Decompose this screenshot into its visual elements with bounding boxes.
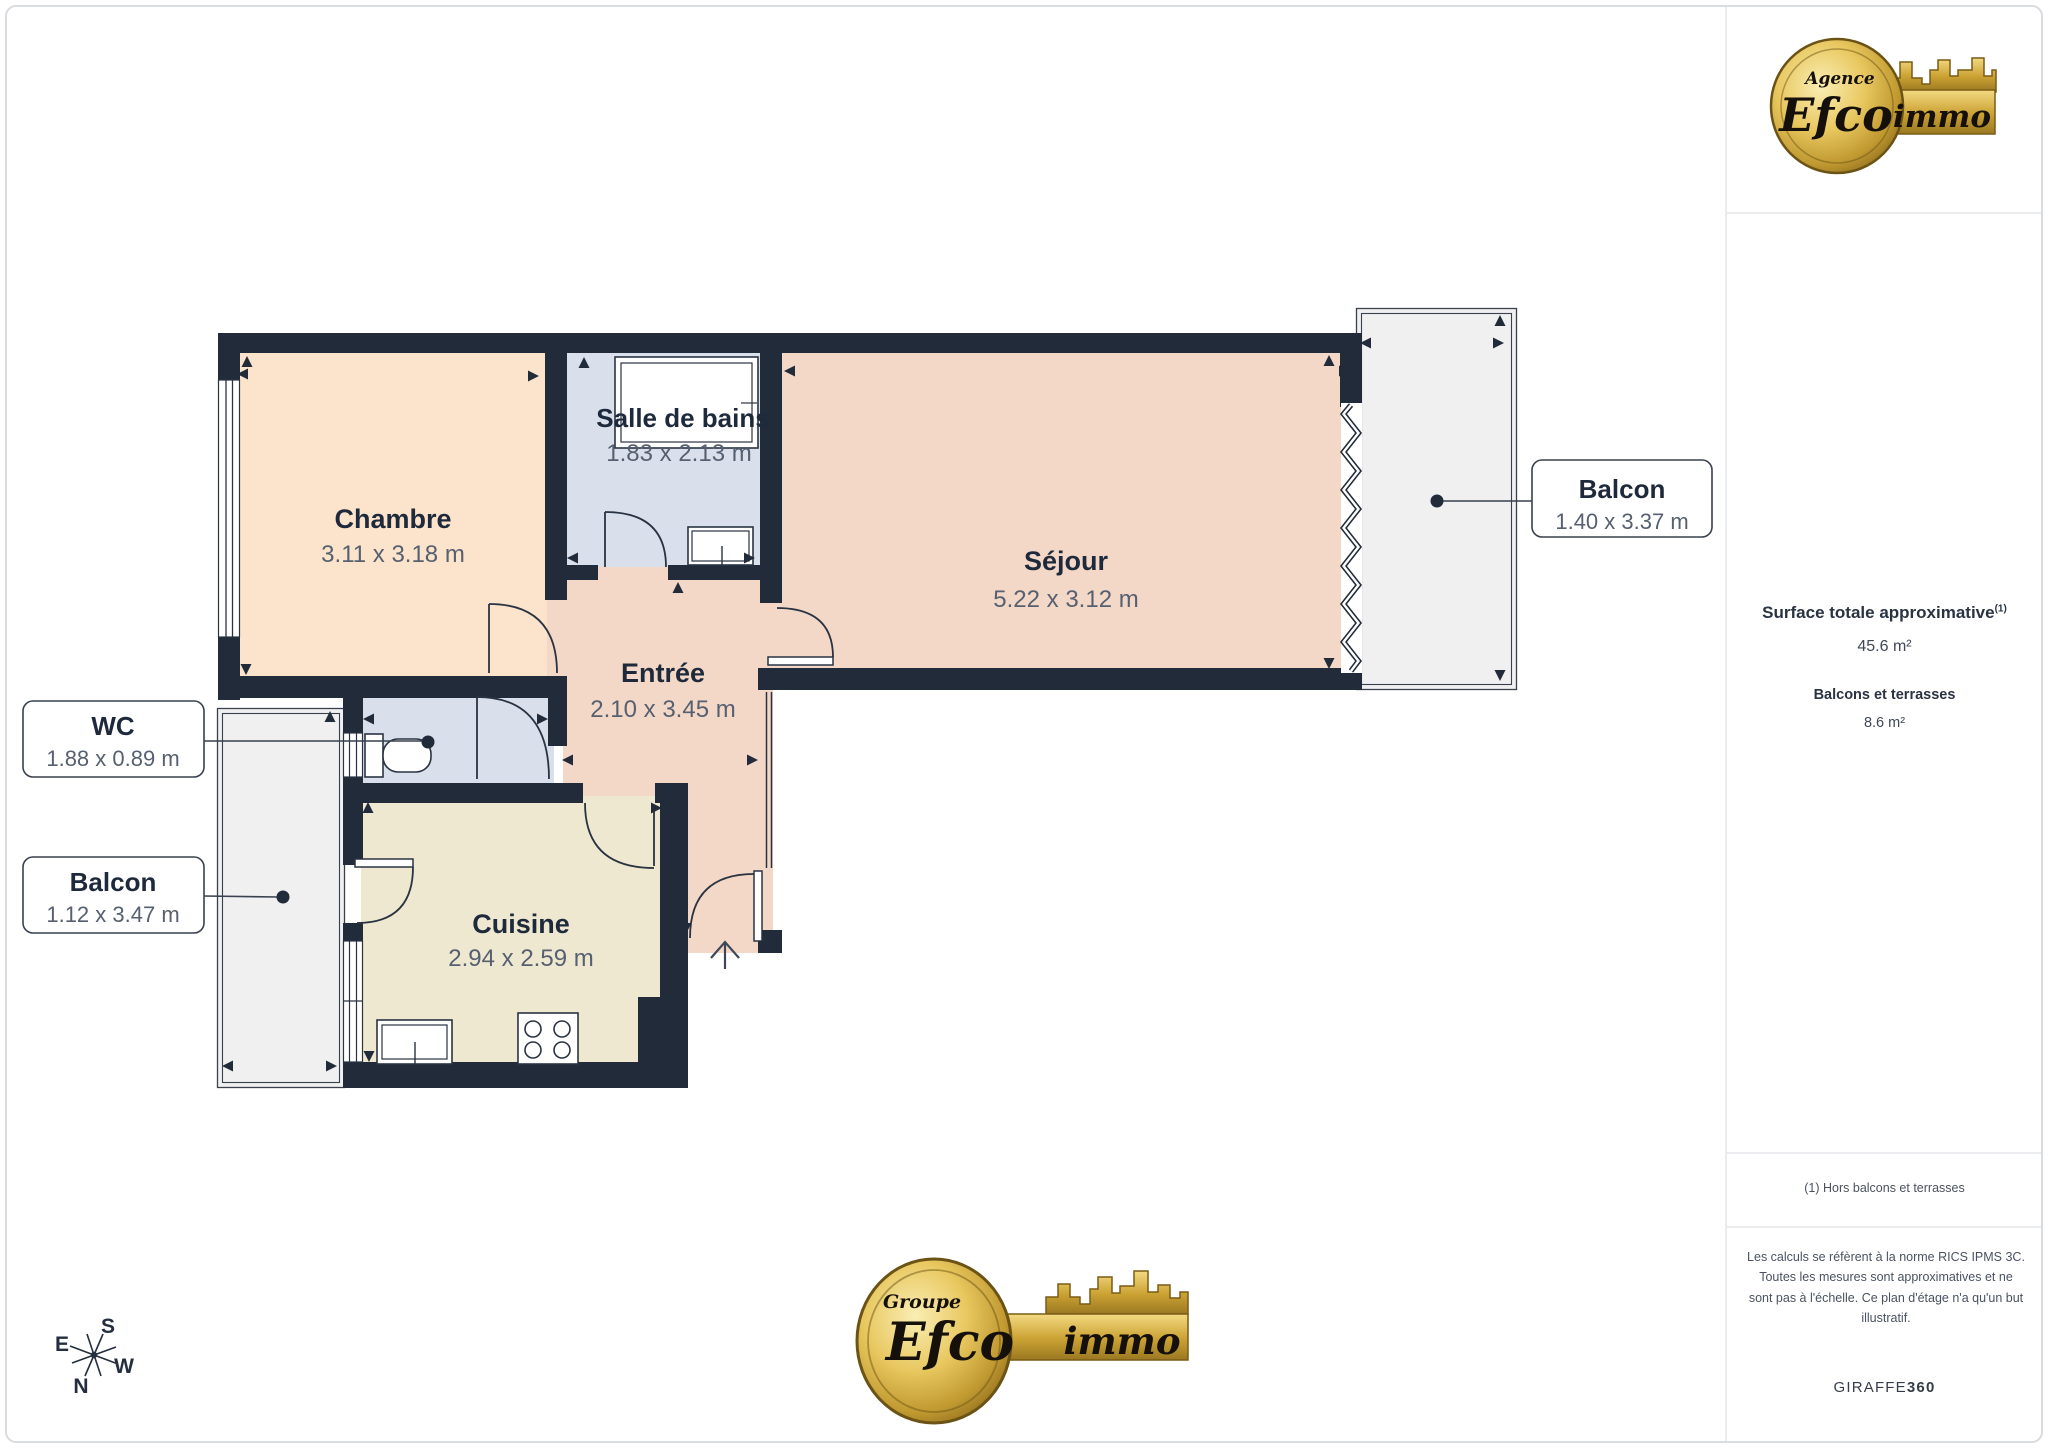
balcony-surface-value: 8.6 m² bbox=[1727, 715, 2042, 731]
folding-glass-wall bbox=[1341, 403, 1362, 673]
room-sejour-floor bbox=[760, 353, 1344, 690]
room-chambre-label: Chambre bbox=[334, 504, 451, 534]
room-chambre-dims: 3.11 x 3.18 m bbox=[321, 541, 465, 568]
svg-text:Agence: Agence bbox=[1803, 69, 1875, 89]
surface-total-title: Surface totale approximative(1) bbox=[1727, 603, 2042, 623]
svg-text:Efco: Efco bbox=[884, 1312, 1014, 1373]
window-cuisine bbox=[344, 941, 363, 1062]
svg-text:Efco: Efco bbox=[1777, 88, 1893, 142]
footnote-ref: (1) bbox=[1995, 603, 2007, 614]
label-box-balcon-droit: Balcon 1.40 x 3.37 m bbox=[1532, 460, 1712, 537]
svg-text:1.40 x 3.37 m: 1.40 x 3.37 m bbox=[1555, 509, 1688, 534]
label-box-balcon-gauche: Balcon 1.12 x 3.47 m bbox=[23, 857, 204, 933]
svg-text:Balcon: Balcon bbox=[70, 867, 157, 897]
room-cuisine-dims: 2.94 x 2.59 m bbox=[448, 945, 593, 972]
room-cuisine-label: Cuisine bbox=[472, 909, 570, 939]
room-sejour-label: Séjour bbox=[1024, 546, 1109, 576]
compass-e: E bbox=[55, 1333, 69, 1356]
surface-total-value: 45.6 m² bbox=[1727, 638, 2042, 656]
room-sdb-dims: 1.83 x 2.13 m bbox=[606, 440, 751, 467]
room-entree-label: Entrée bbox=[621, 658, 705, 688]
window-wc bbox=[344, 733, 363, 777]
compass-w: W bbox=[114, 1355, 134, 1378]
window-chambre bbox=[219, 380, 240, 637]
bathroom-sink bbox=[688, 527, 753, 565]
svg-text:immo: immo bbox=[1063, 1319, 1180, 1363]
disclaimer-text: Les calculs se réfèrent à la norme RICS … bbox=[1747, 1247, 2025, 1328]
giraffe360-credit: GIRAFFE360 bbox=[1727, 1379, 2042, 1396]
compass-n: N bbox=[73, 1375, 88, 1398]
group-logo: Groupe Efco immo bbox=[857, 1259, 1188, 1423]
logo-skyline-icon bbox=[1888, 58, 1996, 92]
stove bbox=[518, 1013, 578, 1064]
floorplan-page: Chambre 3.11 x 3.18 m Salle de bains 1.8… bbox=[0, 0, 2048, 1448]
kitchen-sink bbox=[377, 1020, 452, 1064]
room-entree-dims: 2.10 x 3.45 m bbox=[590, 696, 735, 723]
compass-icon: S E W N bbox=[55, 1315, 134, 1398]
room-sdb-label: Salle de bains bbox=[596, 403, 769, 433]
svg-text:1.12 x 3.47 m: 1.12 x 3.47 m bbox=[46, 902, 179, 927]
agency-logo: Agence Efco immo bbox=[1771, 39, 1996, 173]
svg-text:WC: WC bbox=[91, 711, 135, 741]
logo-skyline-icon bbox=[1046, 1271, 1188, 1314]
svg-text:Balcon: Balcon bbox=[1579, 474, 1666, 504]
compass-s: S bbox=[101, 1315, 115, 1338]
balcony-surface-title: Balcons et terrasses bbox=[1727, 687, 2042, 703]
floor-plan: Chambre 3.11 x 3.18 m Salle de bains 1.8… bbox=[23, 309, 1712, 1089]
room-wc-floor bbox=[361, 690, 554, 785]
footnote-text: (1) Hors balcons et terrasses bbox=[1727, 1181, 2042, 1195]
room-sejour-dims: 5.22 x 3.12 m bbox=[993, 586, 1138, 613]
svg-text:Groupe: Groupe bbox=[883, 1291, 961, 1313]
label-box-wc: WC 1.88 x 0.89 m bbox=[23, 701, 204, 777]
svg-text:1.88 x 0.89 m: 1.88 x 0.89 m bbox=[46, 746, 179, 771]
svg-text:immo: immo bbox=[1893, 99, 1991, 135]
